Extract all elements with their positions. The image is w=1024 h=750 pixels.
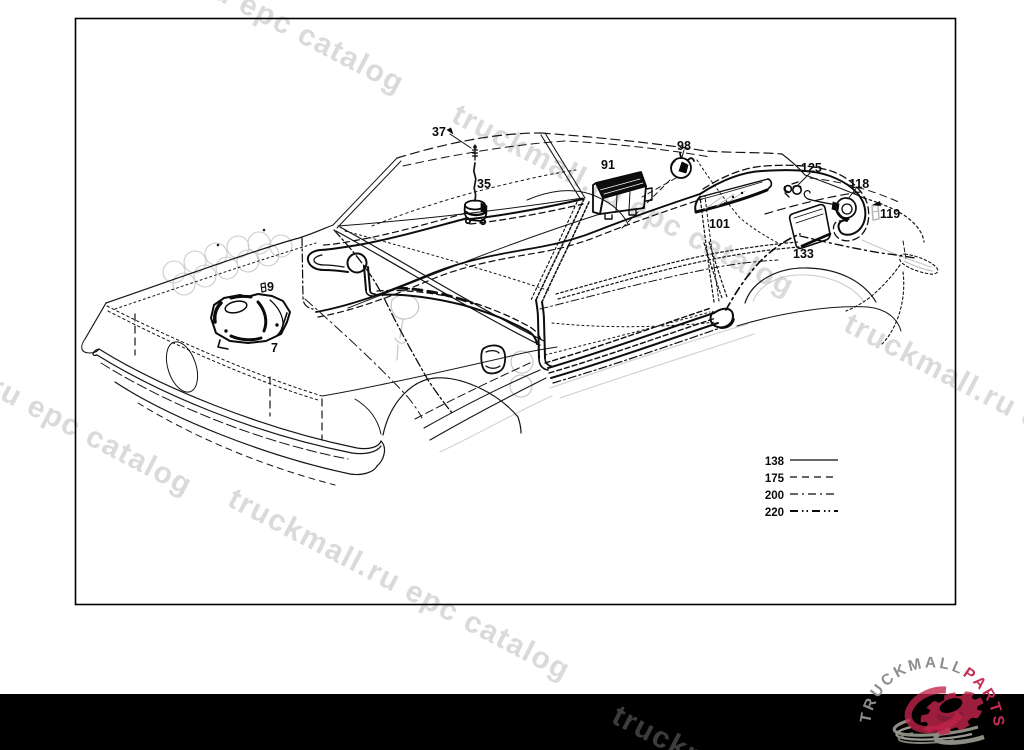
svg-text:175: 175 bbox=[765, 473, 785, 485]
svg-text:200: 200 bbox=[765, 490, 784, 502]
svg-text:truckmall.ru epc catalog: truckmall.ru epc catalog bbox=[839, 307, 1024, 512]
svg-text:7: 7 bbox=[271, 341, 278, 355]
svg-text:9: 9 bbox=[267, 280, 274, 294]
svg-text:truckmall.ru epc catalog: truckmall.ru epc catalog bbox=[447, 98, 800, 303]
svg-text:truckmall.ru epc catalog: truckmall.ru epc catalog bbox=[57, 0, 410, 100]
svg-text:truckmall.ru epc catalog: truckmall.ru epc catalog bbox=[223, 482, 576, 687]
svg-text:37: 37 bbox=[432, 125, 446, 139]
svg-text:91: 91 bbox=[601, 158, 615, 172]
svg-text:119: 119 bbox=[880, 207, 900, 221]
svg-text:125: 125 bbox=[801, 161, 822, 175]
svg-text:118: 118 bbox=[849, 177, 869, 191]
svg-text:98: 98 bbox=[677, 139, 691, 153]
svg-text:35: 35 bbox=[477, 177, 491, 191]
svg-text:101: 101 bbox=[709, 217, 730, 231]
svg-text:138: 138 bbox=[765, 456, 785, 468]
svg-text:133: 133 bbox=[793, 247, 814, 261]
svg-text:220: 220 bbox=[765, 507, 784, 519]
